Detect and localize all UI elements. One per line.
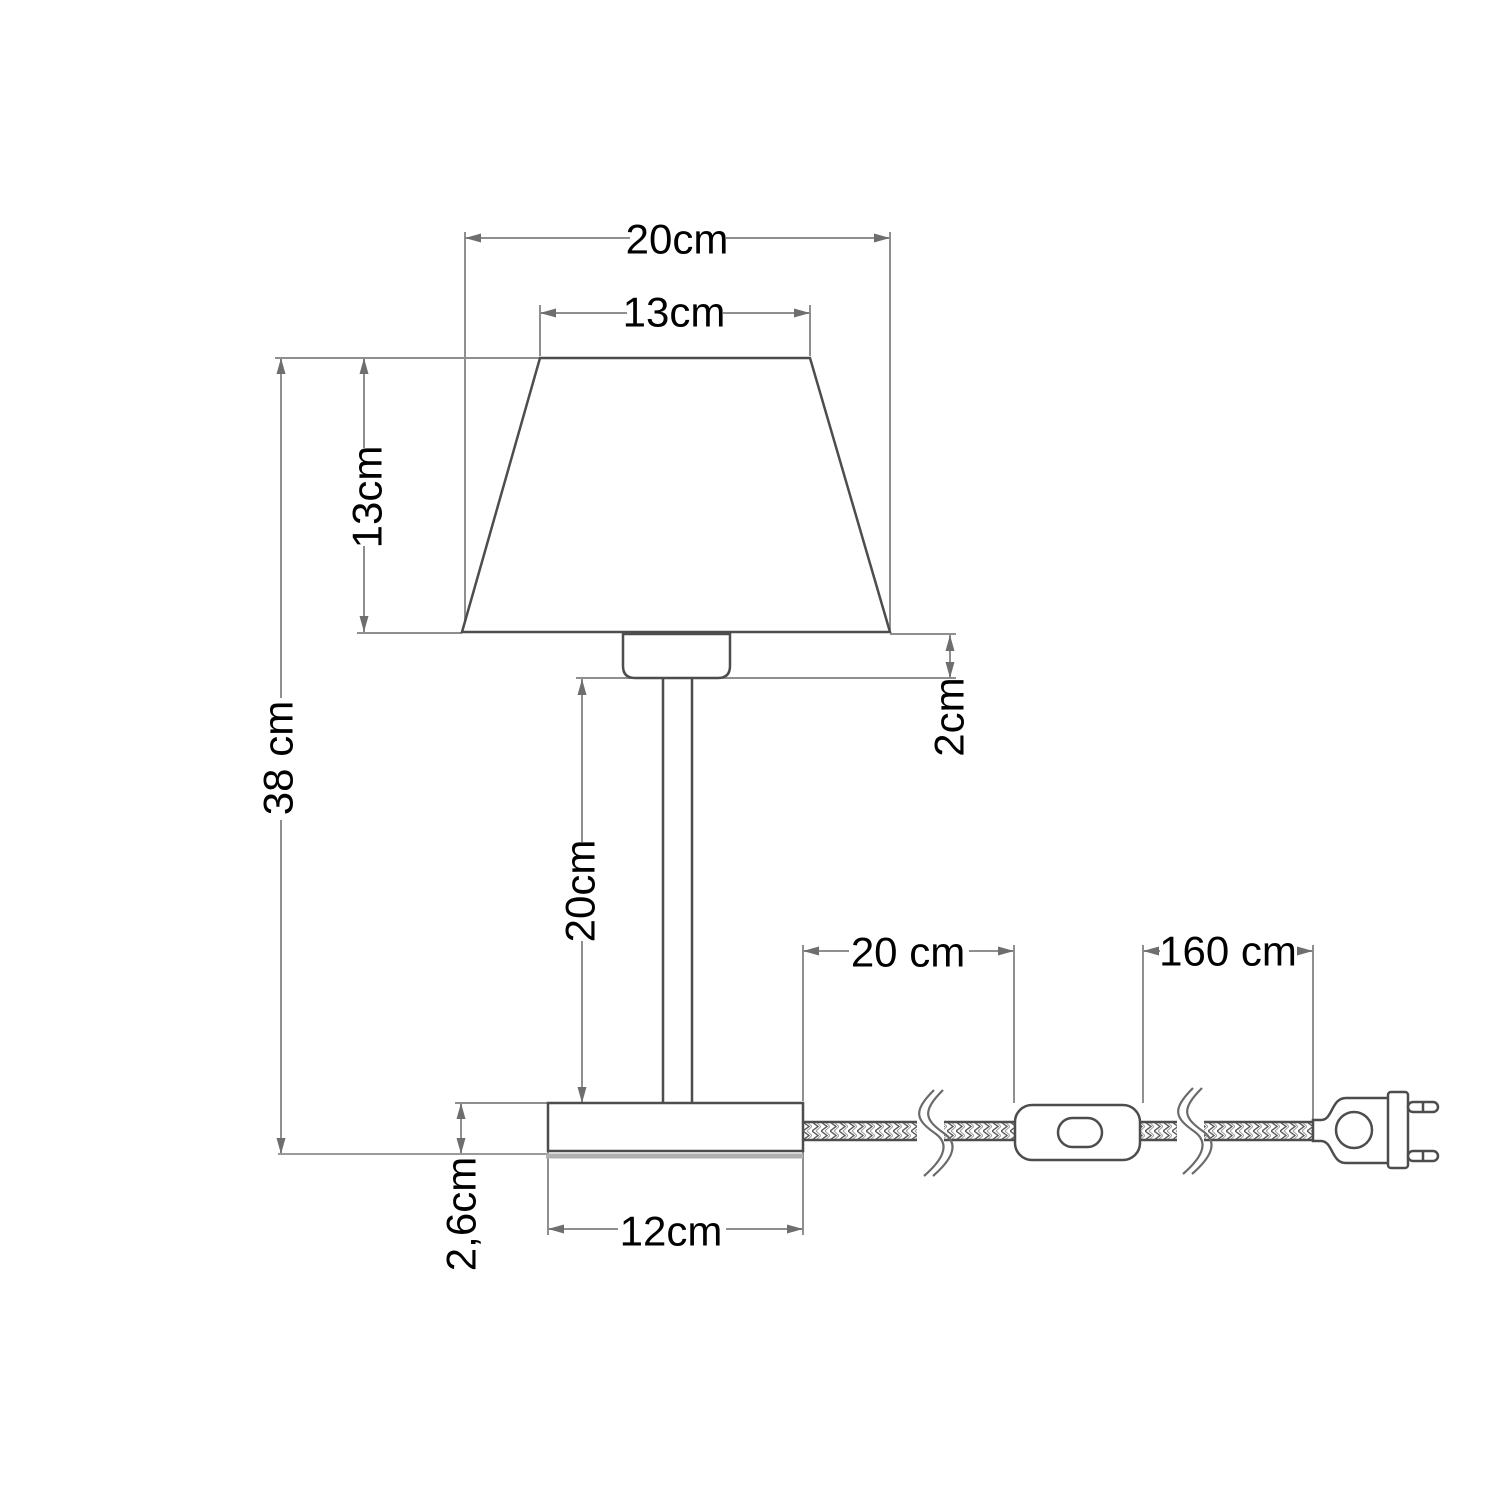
- dim-label-cord-to-switch: 20 cm: [851, 929, 965, 976]
- dim-label-total-height: 38 cm: [255, 701, 302, 815]
- switch-button: [1058, 1118, 1102, 1147]
- plug-face: [1388, 1092, 1408, 1168]
- dim-label-base-width: 12cm: [620, 1208, 723, 1255]
- dim-label-shade-bottom-width: 20cm: [626, 216, 729, 263]
- inline-switch: [1015, 1105, 1140, 1160]
- dim-label-stem-height: 20cm: [557, 840, 604, 943]
- plug-screw: [1336, 1112, 1372, 1148]
- diagram-canvas: 20cm 13cm 13cm 38 cm 2cm 20cm 2,6cm 12cm…: [0, 0, 1500, 1500]
- dim-label-shade-height: 13cm: [344, 446, 391, 549]
- dim-label-shade-top-width: 13cm: [623, 289, 726, 336]
- dim-label-base-height: 2,6cm: [438, 1157, 485, 1271]
- power-cord: [803, 1088, 1438, 1176]
- lamp-base: [548, 1103, 803, 1151]
- lamp-socket: [623, 634, 730, 678]
- power-plug: [1313, 1092, 1438, 1168]
- lamp-dimension-diagram: 20cm 13cm 13cm 38 cm 2cm 20cm 2,6cm 12cm…: [0, 0, 1500, 1500]
- dim-label-cord-to-plug: 160 cm: [1159, 928, 1297, 975]
- lamp-body: [462, 358, 890, 1151]
- lamp-stem: [663, 678, 692, 1103]
- dim-label-socket-height: 2cm: [926, 677, 973, 756]
- lamp-shade: [462, 358, 890, 632]
